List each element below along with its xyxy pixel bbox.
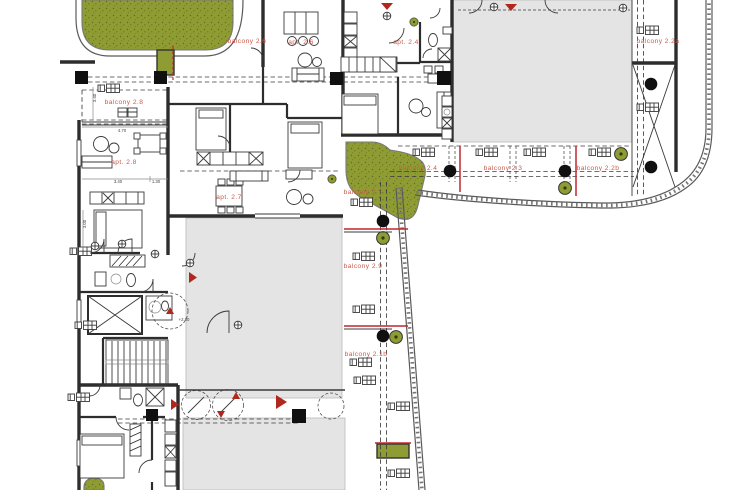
label-apt-2-7: apt. 2.7 xyxy=(216,194,242,201)
floor-plan-canvas: balcony 2.8 apt. 2.8 balcony 2.6 apt. 2.… xyxy=(0,0,734,490)
dim-room-depth: 3.40 xyxy=(92,93,97,102)
dimension-labels: 4.70 3.40 1.30 3.40 3.00 +2.80 xyxy=(82,93,190,322)
central-courtyard-slab xyxy=(186,218,342,398)
direction-arrow-down xyxy=(217,411,225,418)
lower-courtyard-slab xyxy=(183,418,345,490)
bathroom-core xyxy=(95,255,145,287)
apt-2-4-furniture xyxy=(341,12,452,139)
floor-plan-sheet: balcony 2.8 apt. 2.8 balcony 2.6 apt. 2.… xyxy=(0,0,734,490)
upper-courtyard-slab xyxy=(452,0,632,142)
dim-kitchen-width: 3.40 xyxy=(114,179,123,184)
label-balcony-2-1b: balcony 2.1b xyxy=(345,351,388,358)
label-apt-2-8: apt. 2.8 xyxy=(111,159,137,166)
dim-hall-width: 1.30 xyxy=(152,179,161,184)
accessible-wc xyxy=(146,296,172,320)
circulation-core xyxy=(88,255,172,385)
courtyard-slabs xyxy=(183,0,632,490)
label-balcony-2-3: balcony 2.3 xyxy=(484,165,523,172)
apt-2-6-furniture xyxy=(284,12,324,81)
label-balcony-2-2b: balcony 2.2b xyxy=(577,165,620,172)
grass-area-bottom-left xyxy=(84,478,104,490)
label-balcony-2-9: balcony 2.9 xyxy=(344,263,383,270)
planter-box-right xyxy=(377,444,409,458)
grass-area-top-left xyxy=(82,0,233,50)
level-marker: +2.80 xyxy=(179,317,190,322)
label-balcony-2-4: balcony 2.4 xyxy=(399,165,438,172)
staircase xyxy=(106,340,168,385)
label-apt-2-4: apt. 2.4 xyxy=(393,39,419,46)
dim-bedroom-depth: 3.00 xyxy=(82,219,87,228)
entrance-arrow xyxy=(381,3,393,10)
lower-apartment-furniture xyxy=(80,388,176,486)
apt-2-7-furniture xyxy=(196,108,322,213)
balcony-2-8-seat xyxy=(118,108,137,117)
label-balcony-2-7: balcony 2.7 xyxy=(344,189,383,196)
label-apt-2-6: apt. 2.6 xyxy=(288,39,314,46)
dim-living-width: 4.70 xyxy=(118,128,127,133)
label-balcony-2-6: balcony 2.6 xyxy=(228,38,267,45)
label-balcony-2-8: balcony 2.8 xyxy=(105,99,144,106)
label-balcony-2-2a: balcony 2.2a xyxy=(637,38,680,45)
